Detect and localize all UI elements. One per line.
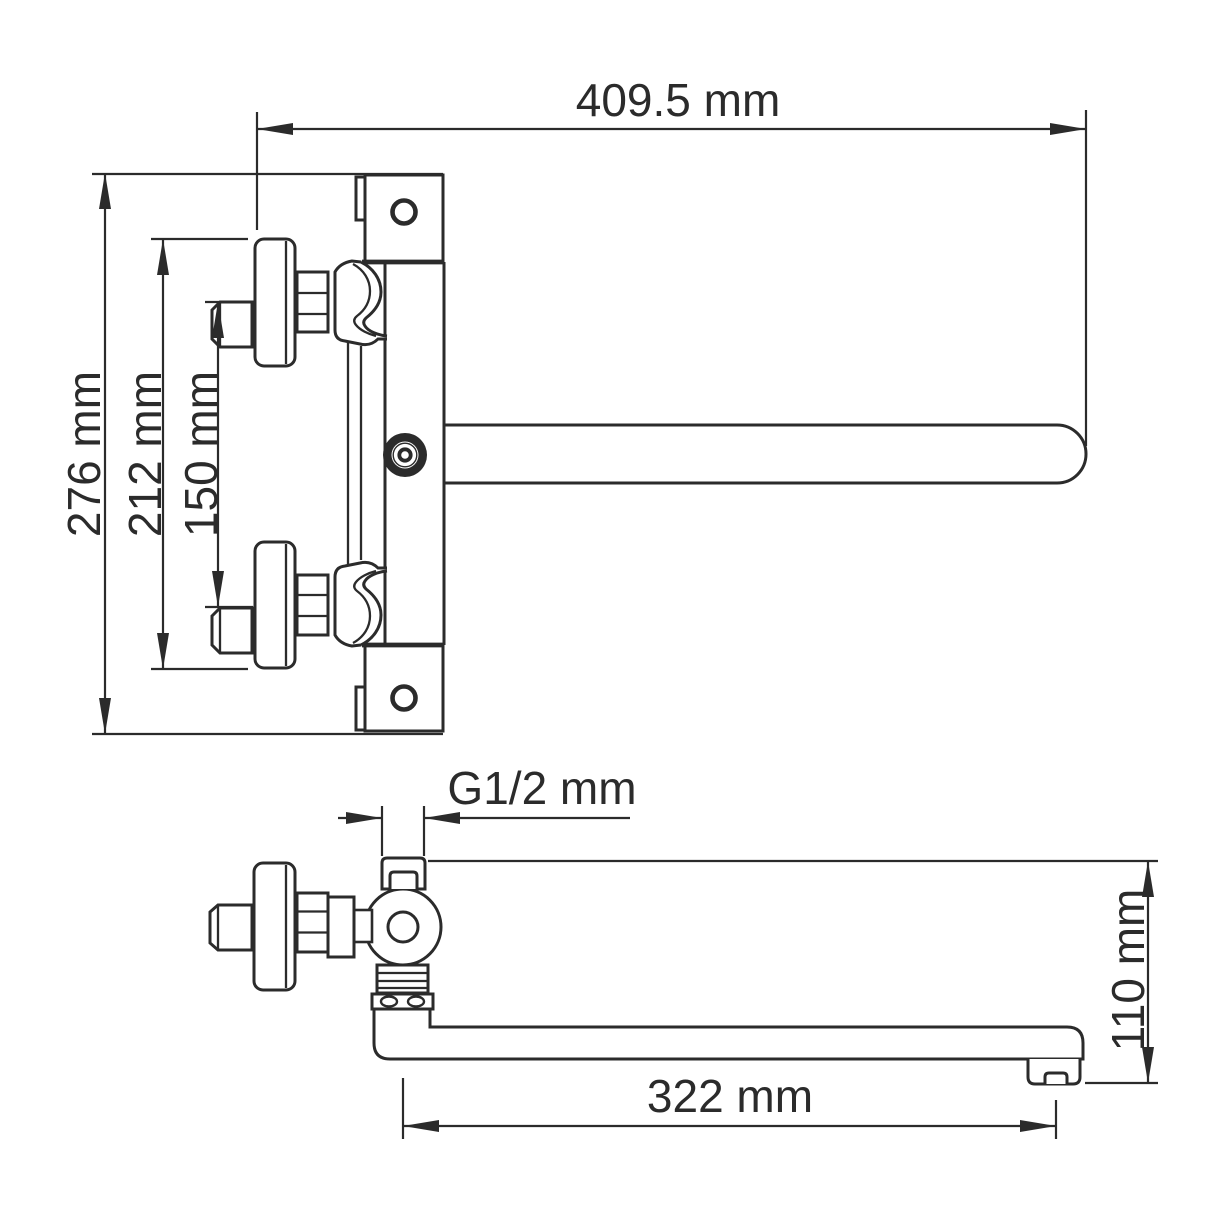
front-view: 409.5 mm 276 mm 212 mm 150 mm: [58, 74, 1086, 734]
tailpiece: [377, 965, 428, 993]
faucet-technical-drawing: 409.5 mm 276 mm 212 mm 150 mm: [0, 0, 1222, 1222]
eccentric-arm-top: [335, 261, 387, 345]
aerator-nozzle: [1028, 1059, 1080, 1084]
diverter-rosette: [383, 433, 427, 477]
spout-side: [374, 1009, 1083, 1059]
spout-front: [445, 425, 1086, 483]
spout-height-label: 110 mm: [1102, 889, 1154, 1052]
escutcheon-side: [254, 863, 295, 990]
screw-hole-top: [393, 201, 416, 224]
inlet-stub-side: [210, 905, 252, 950]
eccentric-arm-bottom: [335, 562, 387, 646]
side-view: G1/2 mm 322 mm 110 mm: [210, 762, 1158, 1139]
outlet-thread-label: G1/2 mm: [447, 762, 636, 814]
escutcheon-top-front: [255, 239, 295, 366]
front-width-label: 409.5 mm: [576, 74, 781, 126]
front-height-label: 276 mm: [58, 371, 110, 537]
inlet-stub-bottom: [212, 608, 252, 653]
dim-outlet-thread: G1/2 mm: [338, 762, 637, 856]
valve-body-side: [328, 858, 1083, 1084]
spout-nut: [372, 994, 433, 1009]
hex-nut-bottom-front: [297, 575, 328, 635]
inlet-spacing-label: 150 mm: [175, 371, 227, 537]
spout-length-label: 322 mm: [647, 1070, 813, 1122]
screw-hole-bottom: [393, 687, 416, 710]
hex-nut-top-front: [297, 272, 328, 332]
drawing-page: 409.5 mm 276 mm 212 mm 150 mm: [0, 0, 1222, 1222]
escutcheon-span-label: 212 mm: [119, 371, 171, 537]
escutcheon-bottom-front: [255, 542, 295, 668]
cartridge-housing: [328, 897, 354, 957]
dim-spout-length: 322 mm: [403, 1070, 1056, 1139]
hex-nut-side: [297, 893, 328, 952]
